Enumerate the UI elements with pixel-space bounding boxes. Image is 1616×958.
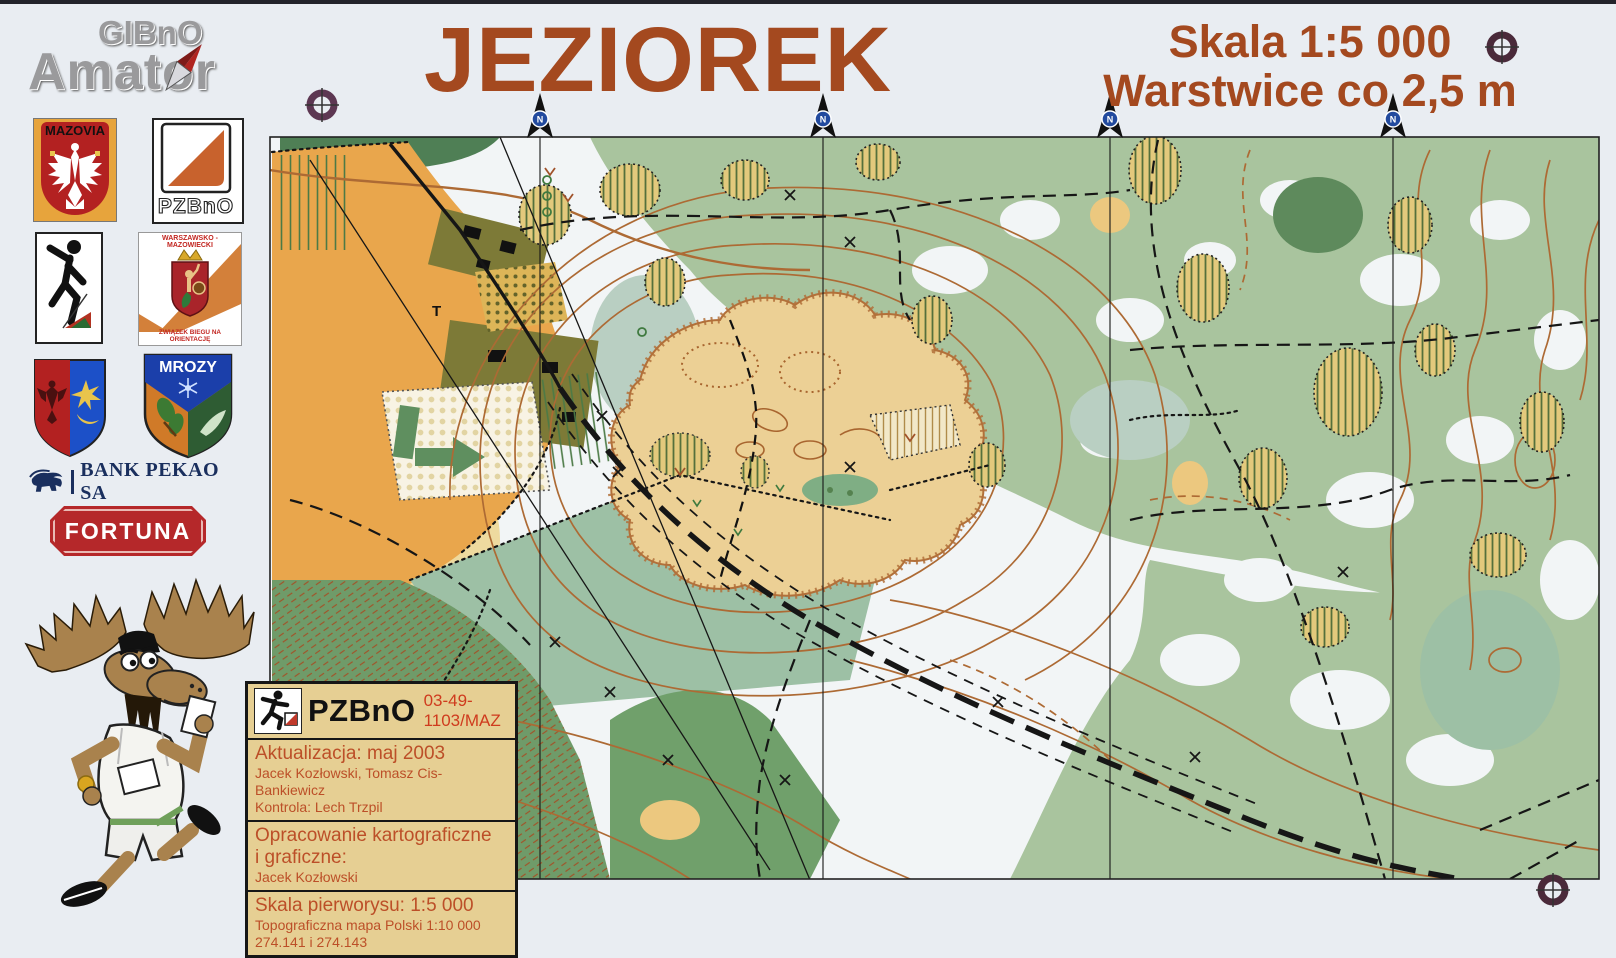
scale-text: Skala 1:5 000 [1060,18,1560,66]
source-basemap: Topograficzna mapa Polski 1:10 000 [255,917,508,934]
mazovia-crest: MAZOVIA [33,118,117,222]
running-moose-mascot [22,568,262,918]
credits-update: Aktualizacja: maj 2003 Jacek Kozłowski, … [248,740,515,822]
north-arrow-label: N [537,115,544,125]
mrozy-crest: MROZY [142,352,234,460]
divider [71,470,74,494]
bank-pekao-logo: BANK PEKAO SA [28,464,248,500]
county-crest [33,358,107,458]
cartography-line2: i graficzne: [255,847,508,869]
bank-pekao-label: BANK PEKAO SA [80,459,248,505]
update-line: Aktualizacja: maj 2003 [255,743,508,765]
athlete-club-logo [35,232,103,344]
credits-header: PZBnO 03-49-1103/MAZ [248,684,515,740]
cartography-line1: Opracowanie kartograficzne [255,825,508,847]
authors-line: Jacek Kozłowski, Tomasz Cis-Bankiewicz [255,765,508,799]
scan-edge [0,0,1616,4]
north-arrow-label: N [1107,115,1114,125]
credits-org: PZBnO [308,693,416,729]
credits-code: 03-49-1103/MAZ [424,691,509,731]
source-scale: Skala pierworysu: 1:5 000 [255,895,508,917]
fortuna-label: FORTUNA [53,509,203,553]
mrozy-label: MROZY [159,359,217,376]
bison-icon [28,469,65,495]
scale-block: Skala 1:5 000 Warstwice co 2,5 m [1060,18,1560,116]
contour-interval-text: Warstwice co 2,5 m [1060,66,1560,116]
credits-cartography: Opracowanie kartograficzne i graficzne: … [248,822,515,892]
fortuna-logo: FORTUNA [50,506,206,556]
scanned-orienteering-map-page: { "page": { "background": "#e9edf2", "ac… [0,0,1616,921]
white-eagle-icon [44,137,106,215]
wm-zbno-emblem [139,244,241,332]
source-sheets: 274.141 i 274.143 [255,934,508,951]
control-line: Kontrola: Lech Trzpil [255,799,508,816]
compass-needle-icon [164,36,204,98]
north-arrow-label: N [1390,115,1397,125]
wm-zbno-bottom-text: ZWIĄZEK BIEGU NA ORIENTACJĘ [139,329,241,343]
north-arrow-label: N [820,115,827,125]
cartographer-name: Jacek Kozłowski [255,869,508,886]
mazovia-label: MAZOVIA [34,123,116,138]
map-credits-box: PZBnO 03-49-1103/MAZ Aktualizacja: maj 2… [245,681,518,958]
credits-source: Skala pierworysu: 1:5 000 Topograficzna … [248,892,515,955]
map-title: JEZIOREK [398,8,918,113]
map-label-t: T [432,303,441,320]
gibno-amator-logo: GIBnO Amator [26,12,251,108]
pzbno-flag-logo: PZBnO [152,118,244,224]
warszawsko-mazowiecki-zbno-logo: WARSZAWSKO - MAZOWIECKI ZWIĄZEK BIEGU NA… [138,232,242,346]
pzbno-flag-label: PZBnO [158,195,234,218]
